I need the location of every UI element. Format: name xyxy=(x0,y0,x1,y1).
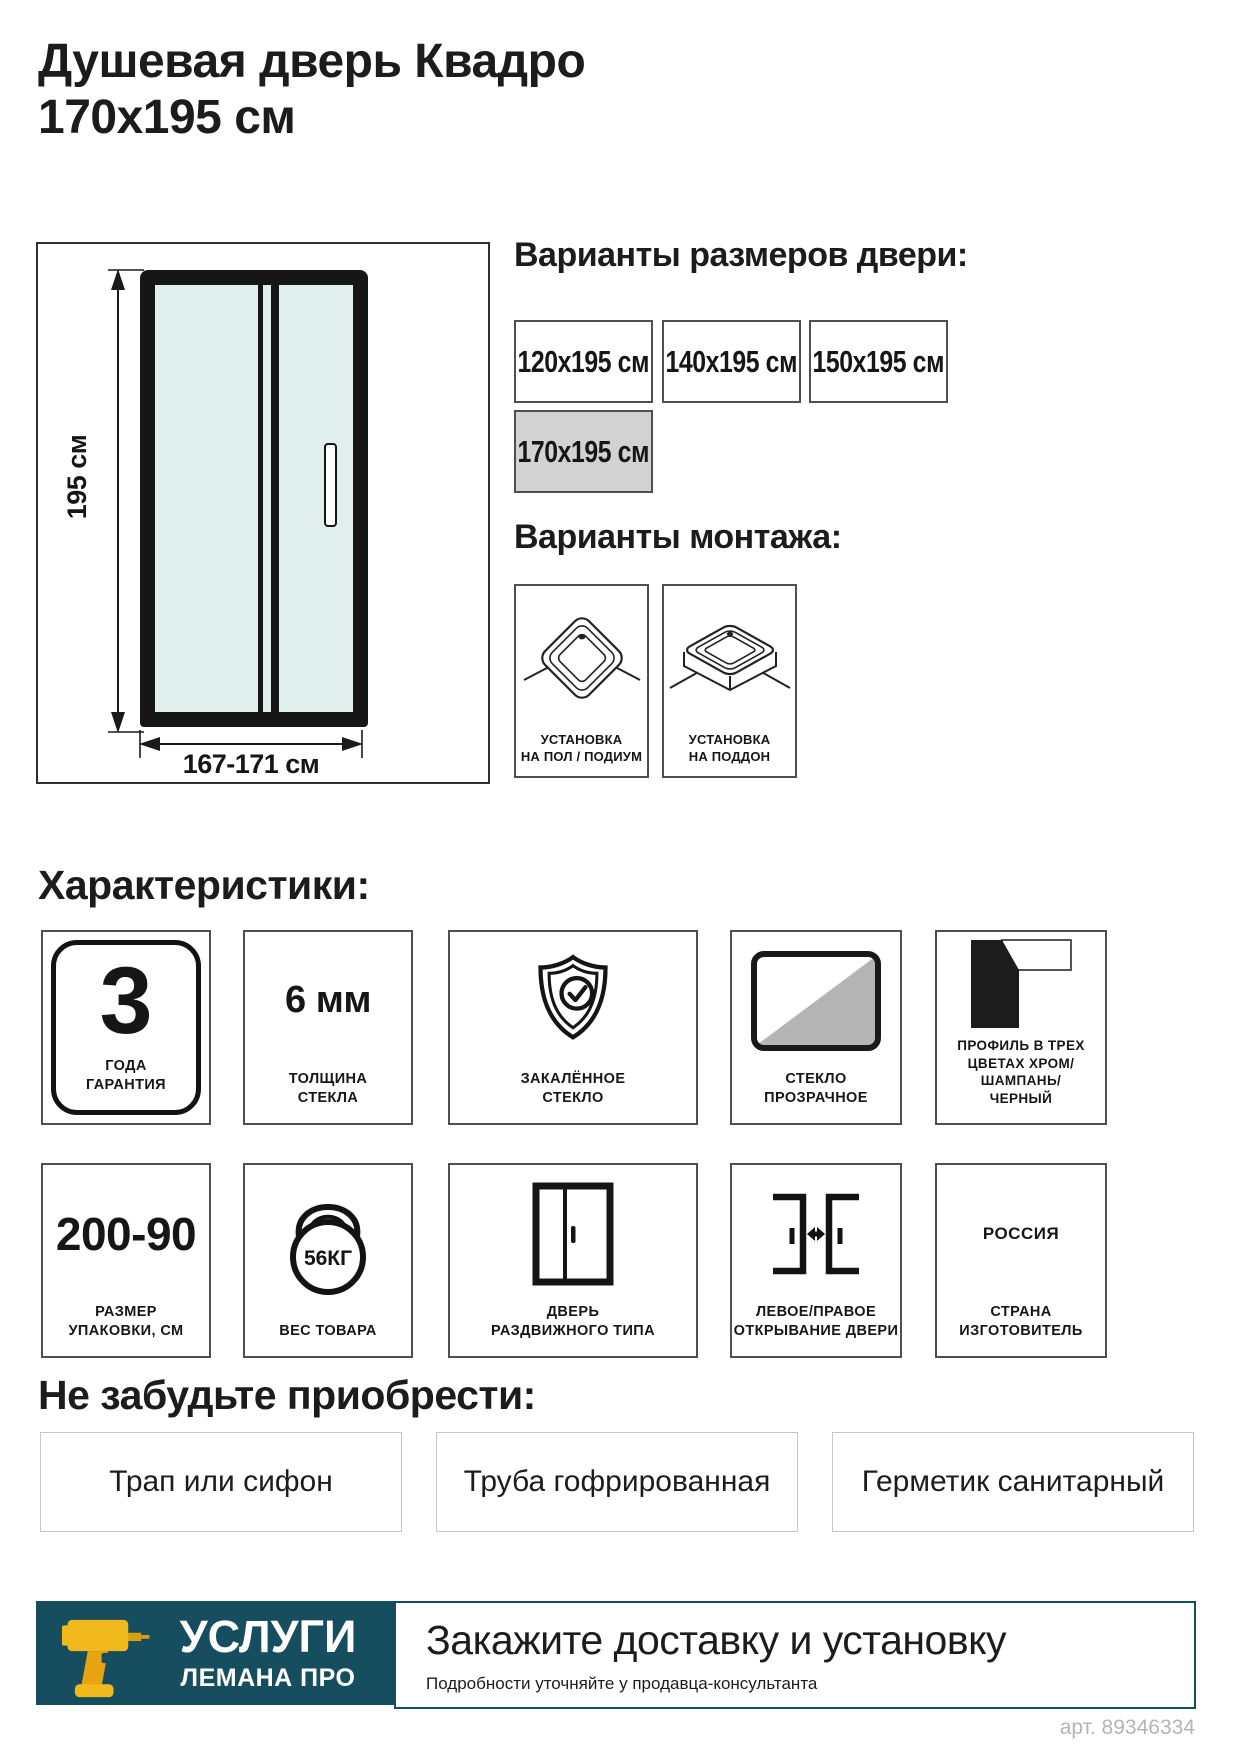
mounting-option-label: УСТАНОВКА НА ПОЛ / ПОДИУМ xyxy=(521,731,642,776)
shower-door-illustration xyxy=(140,270,368,727)
glass-thickness-value: 6 мм xyxy=(285,979,371,1022)
upsell-item-drain: Трап или сифон xyxy=(40,1432,402,1532)
height-dimension-label: 195 см xyxy=(62,392,102,562)
weight-value: 56КГ xyxy=(304,1247,352,1270)
char-label: ДВЕРЬ РАЗДВИЖНОГО ТИПА xyxy=(491,1303,655,1356)
upsell-item-label: Трап или сифон xyxy=(109,1465,333,1499)
char-label: ЛЕВОЕ/ПРАВОЕ ОТКРЫВАНИЕ ДВЕРИ xyxy=(734,1303,899,1356)
char-warranty: 3 ГОДА ГАРАНТИЯ xyxy=(41,930,211,1125)
size-option-150x195-chip[interactable]: 150х195 см xyxy=(809,320,948,403)
characteristics-heading: Характеристики: xyxy=(38,862,370,909)
size-option-120x195-chip[interactable]: 120х195 см xyxy=(514,320,653,403)
size-option-label: 120х195 см xyxy=(518,344,650,380)
upsell-item-sealant: Герметик санитарный xyxy=(832,1432,1194,1532)
product-infographic: Душевая дверь Квадро 170х195 см 195 см 1… xyxy=(0,0,1241,1754)
char-transparent-glass: СТЕКЛО ПРОЗРАЧНОЕ xyxy=(730,930,902,1125)
package-size-value: 200-90 xyxy=(56,1207,196,1261)
transparent-glass-icon xyxy=(751,951,881,1051)
upsell-item-label: Труба гофрированная xyxy=(464,1465,771,1499)
mounting-heading: Варианты монтажа: xyxy=(514,518,842,557)
char-profile-colors: ПРОФИЛЬ В ТРЕХ ЦВЕТАХ ХРОМ/ШАМПАНЬ/ ЧЕРН… xyxy=(935,930,1107,1125)
services-title: УСЛУГИ xyxy=(154,1613,382,1660)
article-number: арт. 89346334 xyxy=(1060,1716,1195,1740)
delivery-cta: Закажите доставку и установку Подробност… xyxy=(394,1601,1196,1709)
door-glass-middle xyxy=(263,285,271,712)
warranty-years-value: 3 xyxy=(100,945,153,1057)
cta-title: Закажите доставку и установку xyxy=(426,1617,1194,1664)
mounting-option-floor: УСТАНОВКА НА ПОЛ / ПОДИУМ xyxy=(514,584,649,778)
shower-tray-icon xyxy=(668,610,792,714)
char-label: РАЗМЕР УПАКОВКИ, СМ xyxy=(68,1303,183,1356)
upsell-heading: Не забудьте приобрести: xyxy=(38,1372,536,1419)
drill-icon xyxy=(62,1607,154,1699)
mounting-option-tray: УСТАНОВКА НА ПОДДОН xyxy=(662,584,797,778)
left-right-opening-icon xyxy=(758,1191,874,1277)
char-package-size: 200-90 РАЗМЕР УПАКОВКИ, СМ xyxy=(41,1163,211,1358)
size-option-label: 150х195 см xyxy=(813,344,945,380)
sizes-heading: Варианты размеров двери: xyxy=(514,236,968,275)
kettlebell-icon: 56КГ xyxy=(273,1187,383,1299)
upsell-item-label: Герметик санитарный xyxy=(862,1465,1165,1499)
size-option-170x195-chip-selected[interactable]: 170х195 см xyxy=(514,410,653,493)
sliding-door-icon xyxy=(532,1182,614,1286)
services-brand: ЛЕМАНА ПРО xyxy=(154,1664,382,1693)
char-country: РОССИЯ СТРАНА ИЗГОТОВИТЕЛЬ xyxy=(935,1163,1107,1358)
country-value: РОССИЯ xyxy=(983,1224,1059,1244)
warranty-badge-icon: 3 ГОДА ГАРАНТИЯ xyxy=(51,940,201,1115)
char-label: ВЕС ТОВАРА xyxy=(279,1322,377,1356)
char-tempered-glass: ЗАКАЛЁННОЕ СТЕКЛО xyxy=(448,930,698,1125)
height-dimension-arrow-icon xyxy=(100,268,144,734)
shield-check-icon xyxy=(530,952,616,1050)
upsell-item-pipe: Труба гофрированная xyxy=(436,1432,798,1532)
char-label: СТРАНА ИЗГОТОВИТЕЛЬ xyxy=(959,1303,1082,1356)
char-label: СТЕКЛО ПРОЗРАЧНОЕ xyxy=(764,1070,868,1123)
services-banner: УСЛУГИ ЛЕМАНА ПРО xyxy=(36,1601,394,1705)
size-option-label: 140х195 см xyxy=(666,344,798,380)
mounting-option-label: УСТАНОВКА НА ПОДДОН xyxy=(689,731,771,776)
door-diagram-panel: 195 см 167-171 см xyxy=(36,242,490,784)
door-handle xyxy=(324,443,337,527)
floor-podium-tray-icon xyxy=(520,610,644,714)
page-title: Душевая дверь Квадро 170х195 см xyxy=(38,34,585,146)
char-label: ГОДА ГАРАНТИЯ xyxy=(86,1057,166,1110)
width-dimension-label: 167-171 см xyxy=(136,749,366,780)
door-glass-left xyxy=(155,285,258,712)
size-option-label: 170х195 см xyxy=(518,434,650,470)
cta-note: Подробности уточняйте у продавца-консуль… xyxy=(426,1674,1194,1694)
char-label: ТОЛЩИНА СТЕКЛА xyxy=(289,1070,368,1123)
char-sliding-door: ДВЕРЬ РАЗДВИЖНОГО ТИПА xyxy=(448,1163,698,1358)
char-left-right-opening: ЛЕВОЕ/ПРАВОЕ ОТКРЫВАНИЕ ДВЕРИ xyxy=(730,1163,902,1358)
char-label: ПРОФИЛЬ В ТРЕХ ЦВЕТАХ ХРОМ/ШАМПАНЬ/ ЧЕРН… xyxy=(937,1037,1105,1123)
char-glass-thickness: 6 мм ТОЛЩИНА СТЕКЛА xyxy=(243,930,413,1125)
profile-corner-icon xyxy=(969,938,1073,1030)
char-label: ЗАКАЛЁННОЕ СТЕКЛО xyxy=(521,1070,626,1123)
size-option-140x195-chip[interactable]: 140х195 см xyxy=(662,320,801,403)
door-glass-right xyxy=(279,285,353,712)
char-weight: 56КГ ВЕС ТОВАРА xyxy=(243,1163,413,1358)
